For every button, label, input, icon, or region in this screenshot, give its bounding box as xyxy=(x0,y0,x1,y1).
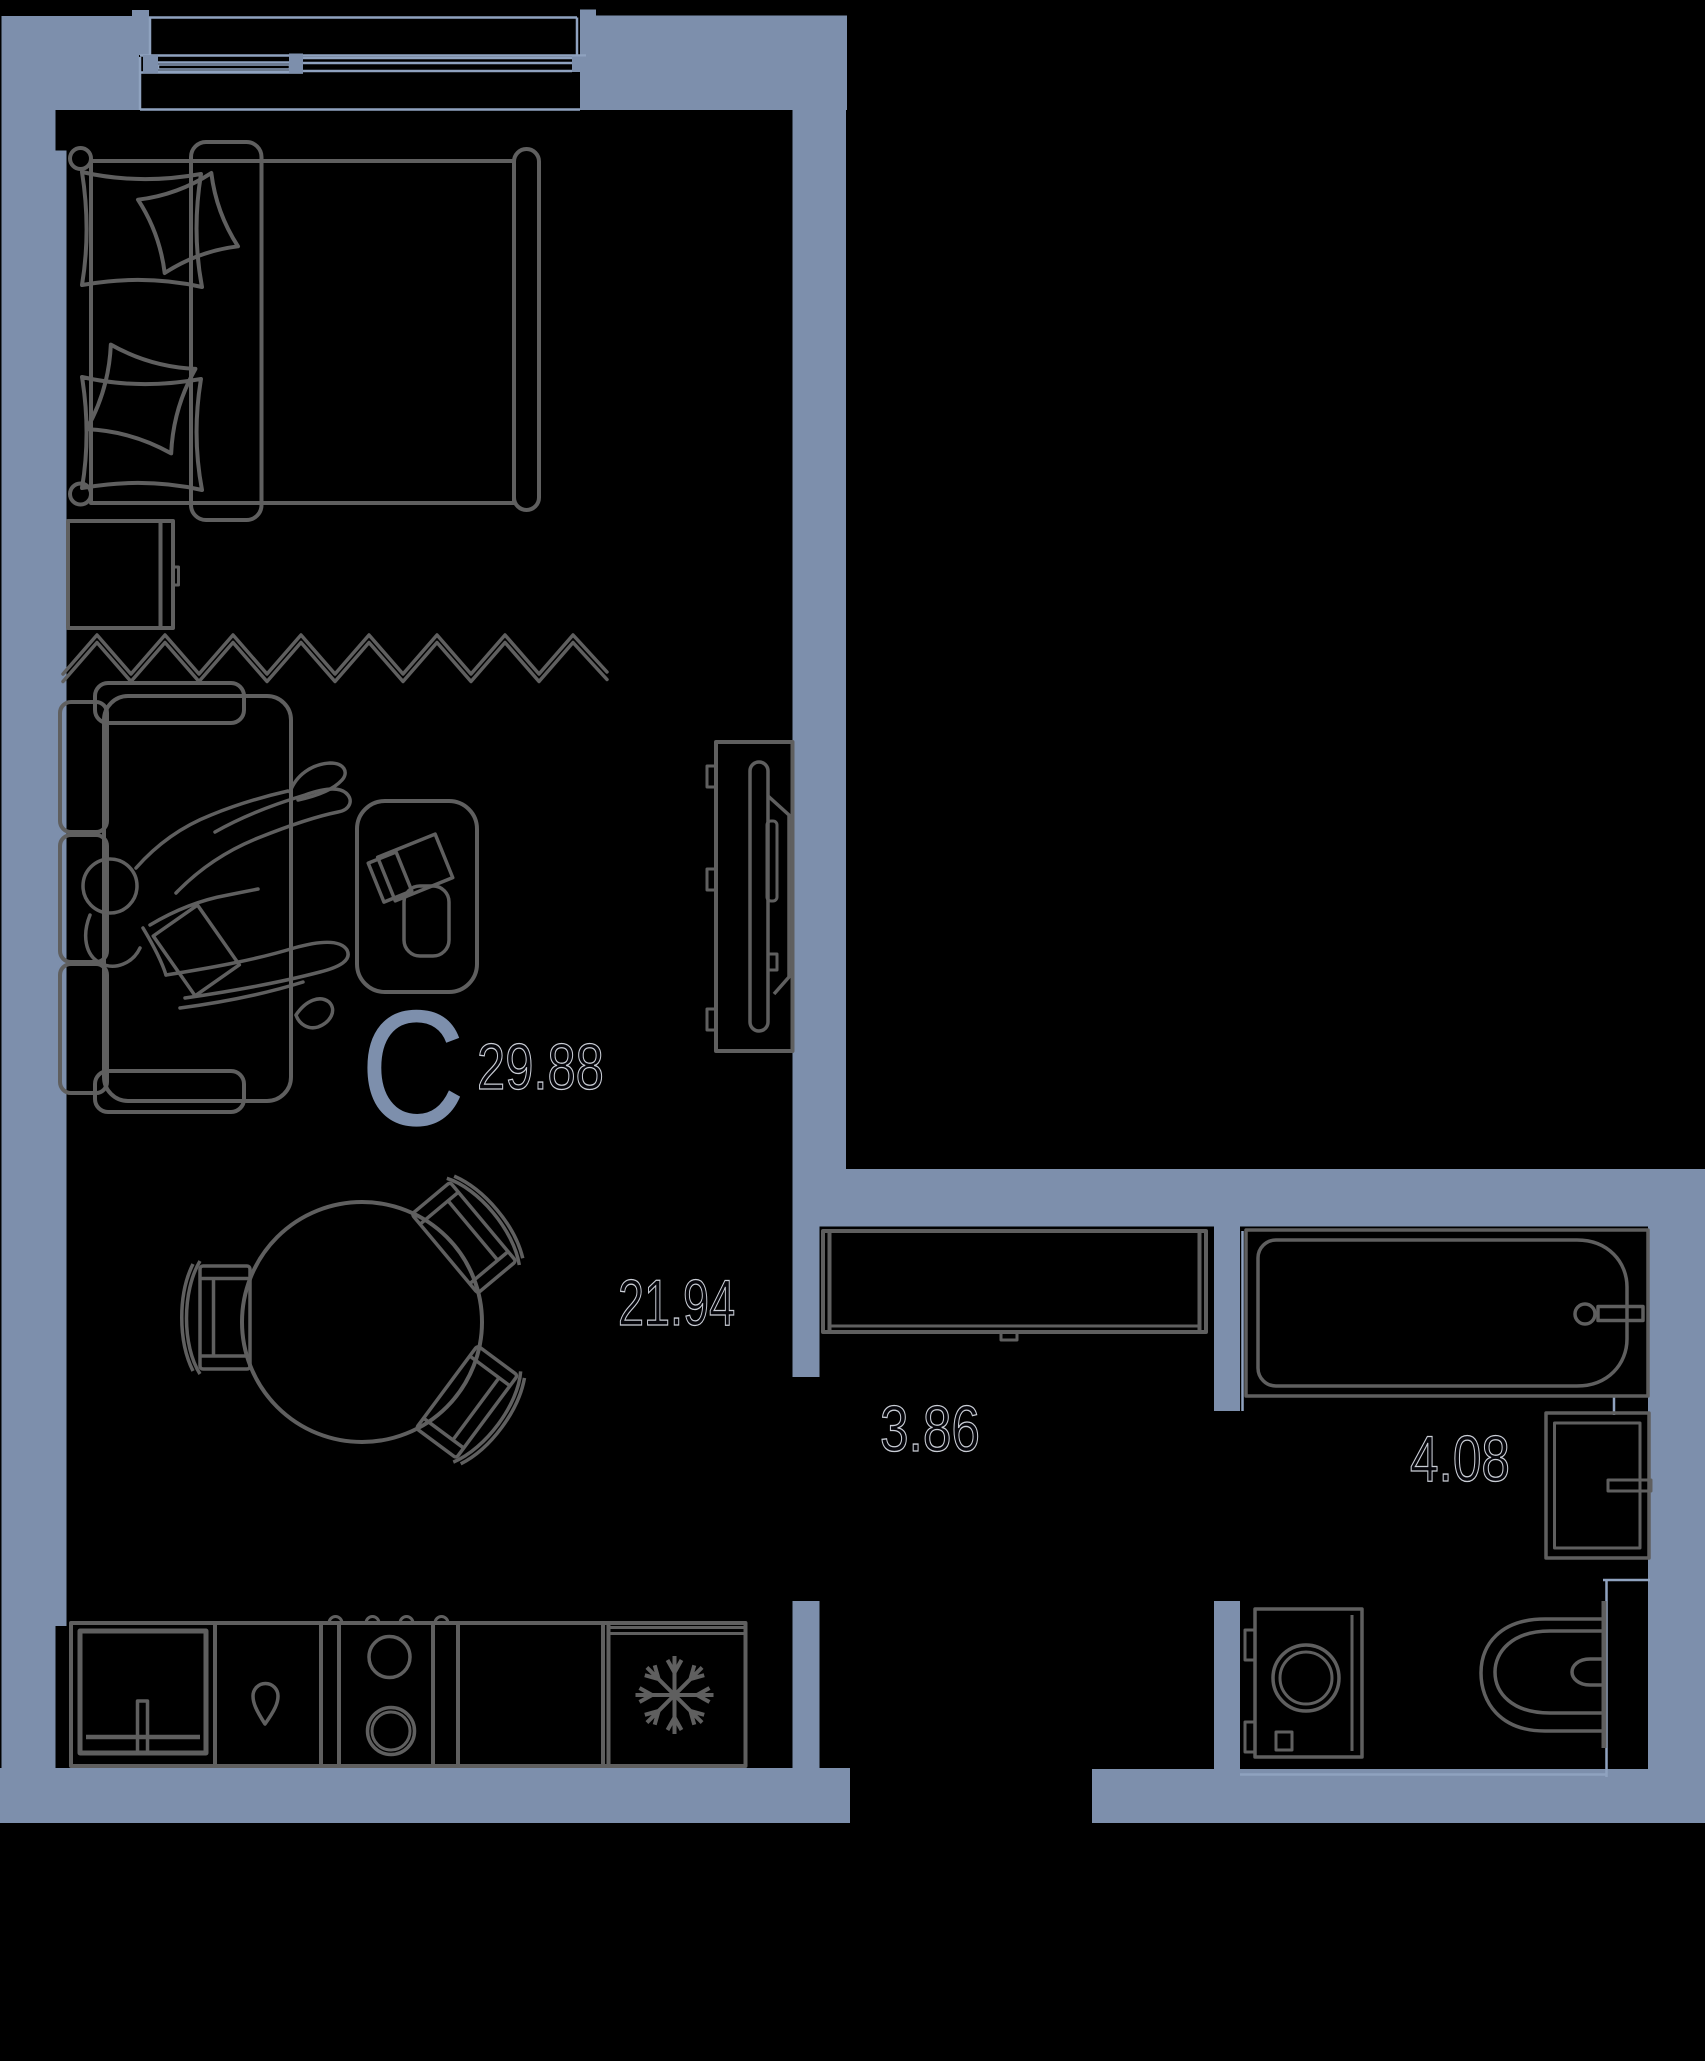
svg-text:29.88: 29.88 xyxy=(477,1031,604,1103)
svg-text:21.94: 21.94 xyxy=(618,1268,735,1340)
svg-text:3.86: 3.86 xyxy=(880,1393,980,1465)
svg-text:4.08: 4.08 xyxy=(1410,1423,1510,1495)
svg-text:C: C xyxy=(360,977,466,1161)
